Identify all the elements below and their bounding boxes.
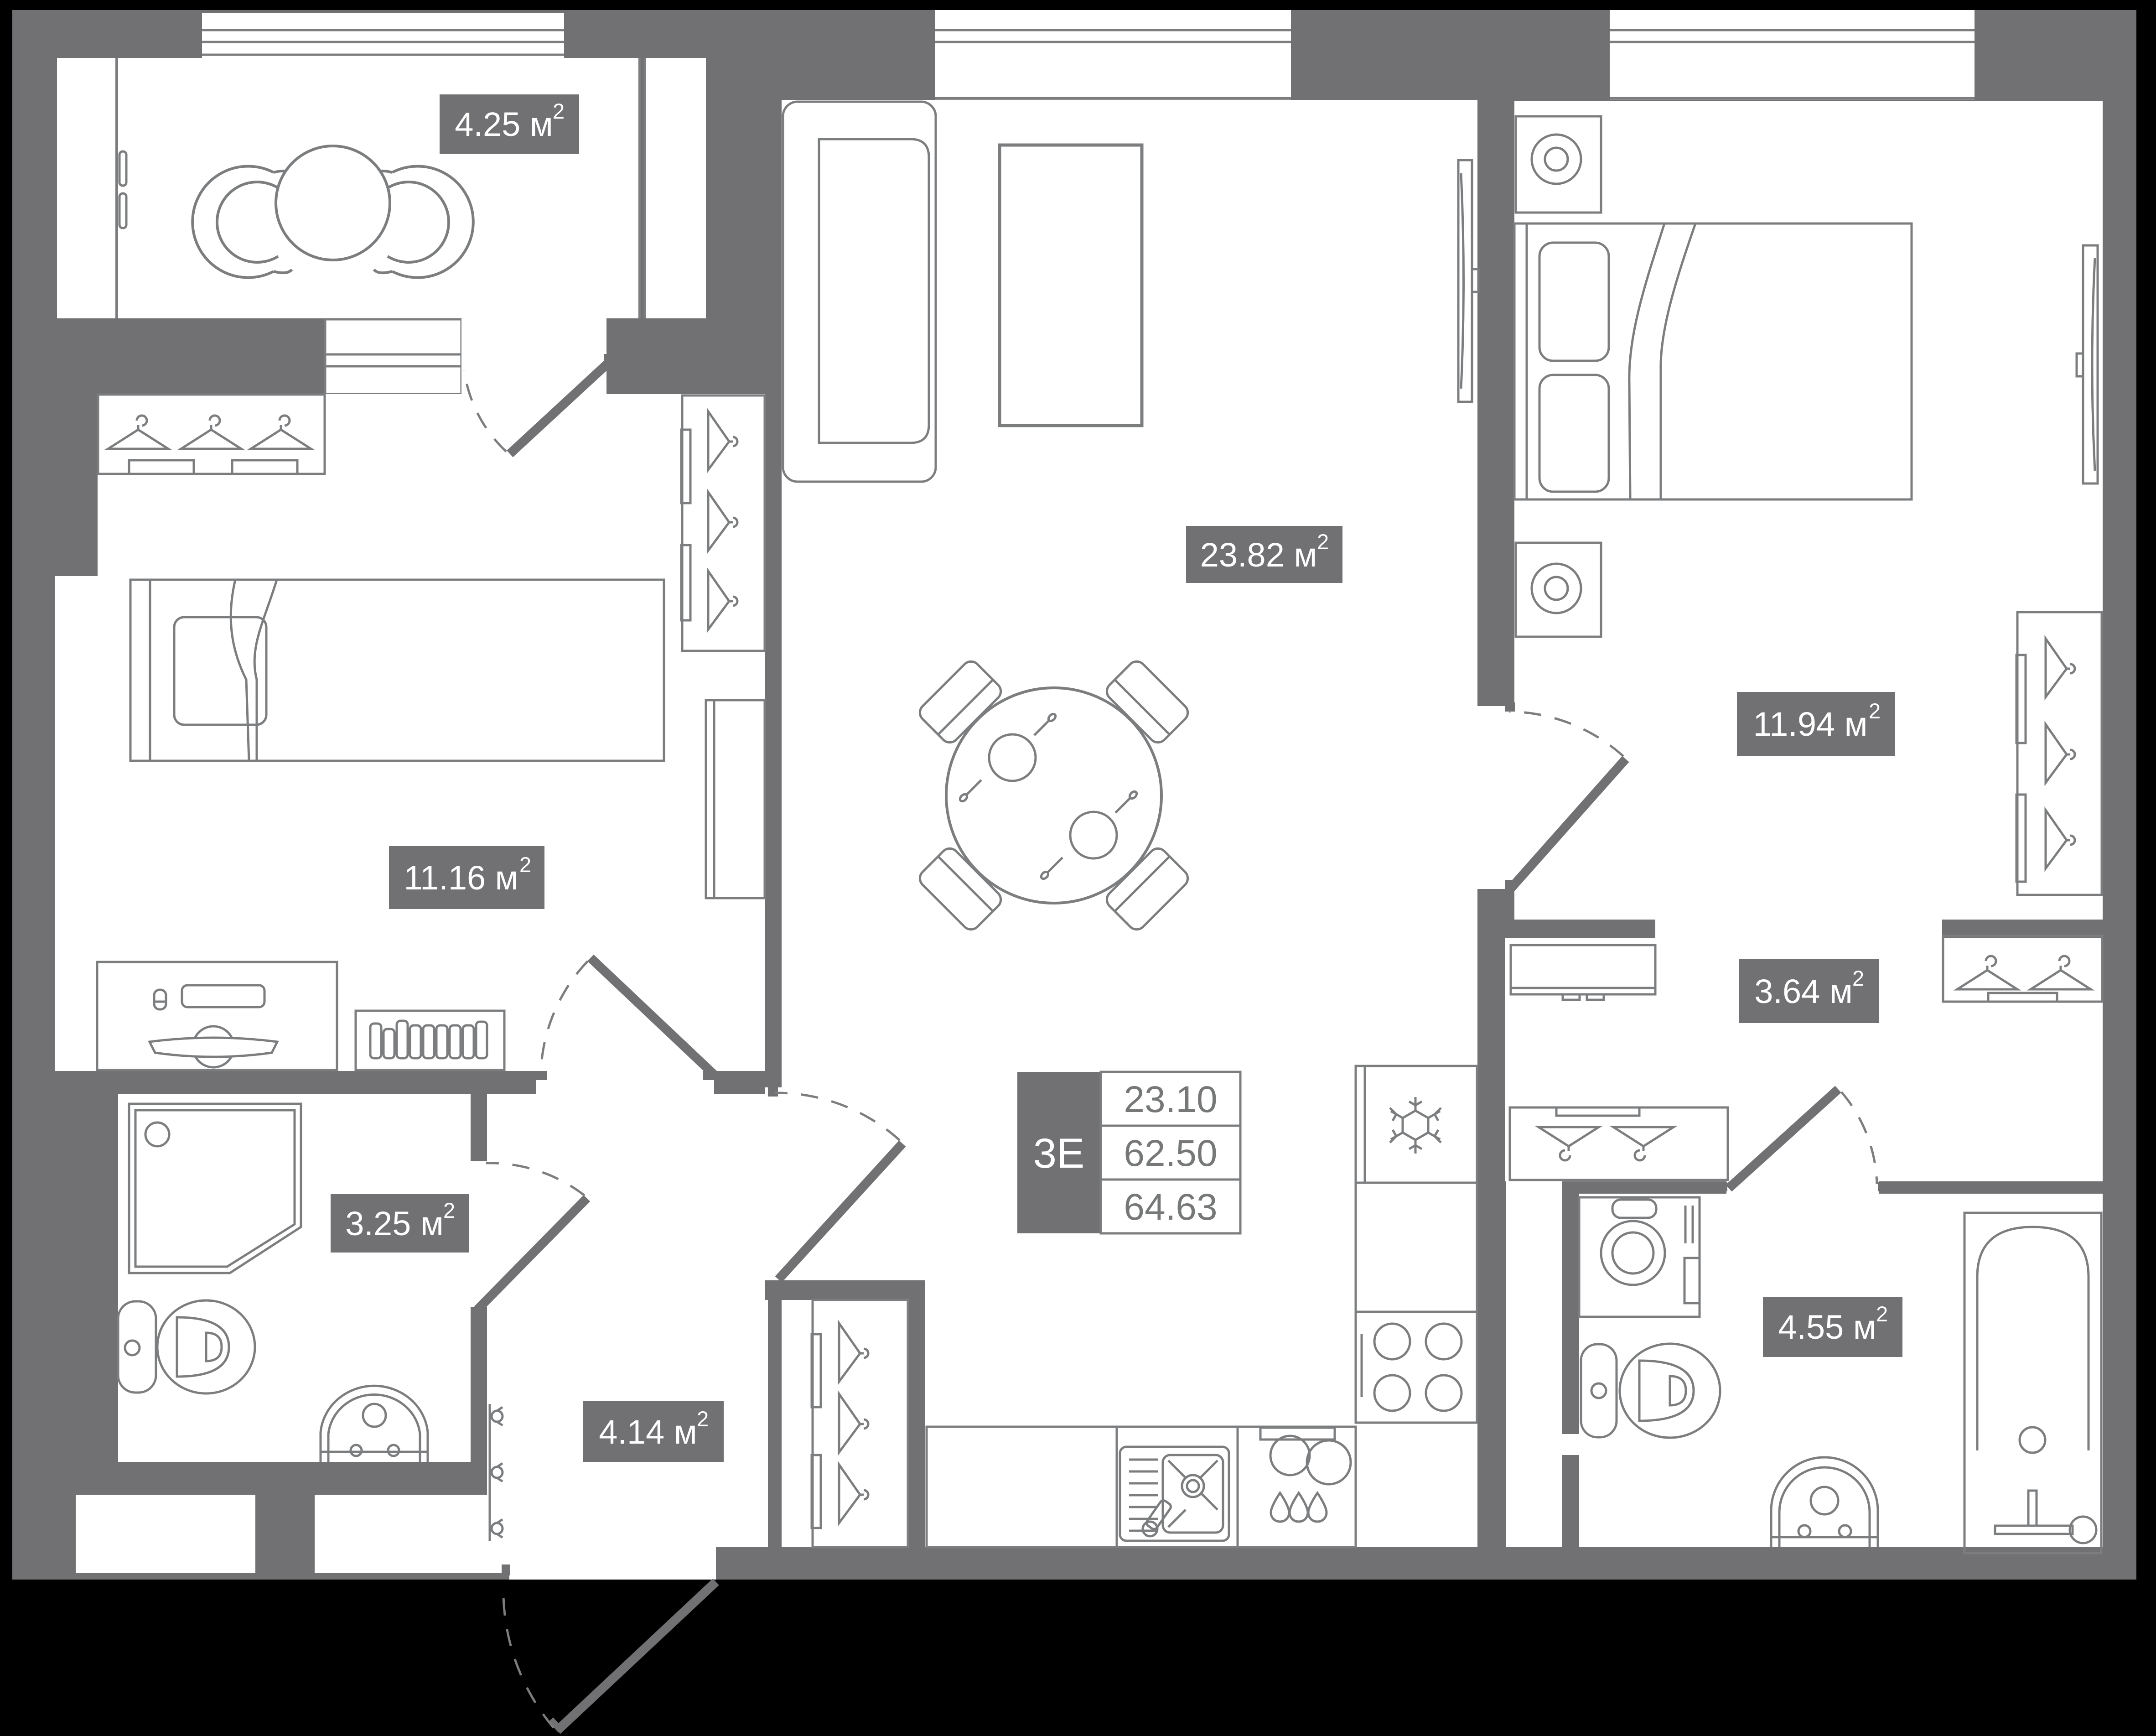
svg-text:2: 2: [553, 99, 565, 123]
svg-text:23.10: 23.10: [1124, 1079, 1217, 1120]
svg-text:3.25 м: 3.25 м: [345, 1205, 443, 1242]
svg-text:23.82 м: 23.82 м: [1200, 536, 1317, 574]
svg-text:62.50: 62.50: [1124, 1133, 1217, 1174]
svg-text:4.14 м: 4.14 м: [599, 1413, 697, 1451]
svg-text:11.16 м: 11.16 м: [404, 859, 518, 897]
svg-text:3Е: 3Е: [1033, 1130, 1085, 1177]
svg-text:64.63: 64.63: [1124, 1186, 1217, 1228]
svg-text:2: 2: [1317, 530, 1329, 554]
svg-text:4.25 м: 4.25 м: [455, 105, 553, 143]
svg-text:2: 2: [697, 1407, 709, 1431]
svg-text:2: 2: [1869, 699, 1881, 723]
svg-text:11.94 м: 11.94 м: [1753, 705, 1867, 743]
svg-text:3.64 м: 3.64 м: [1754, 972, 1852, 1010]
svg-text:4.55 м: 4.55 м: [1778, 1308, 1876, 1346]
svg-text:2: 2: [443, 1198, 455, 1222]
svg-text:2: 2: [1852, 966, 1864, 990]
svg-text:2: 2: [519, 852, 531, 877]
svg-text:2: 2: [1876, 1302, 1888, 1326]
